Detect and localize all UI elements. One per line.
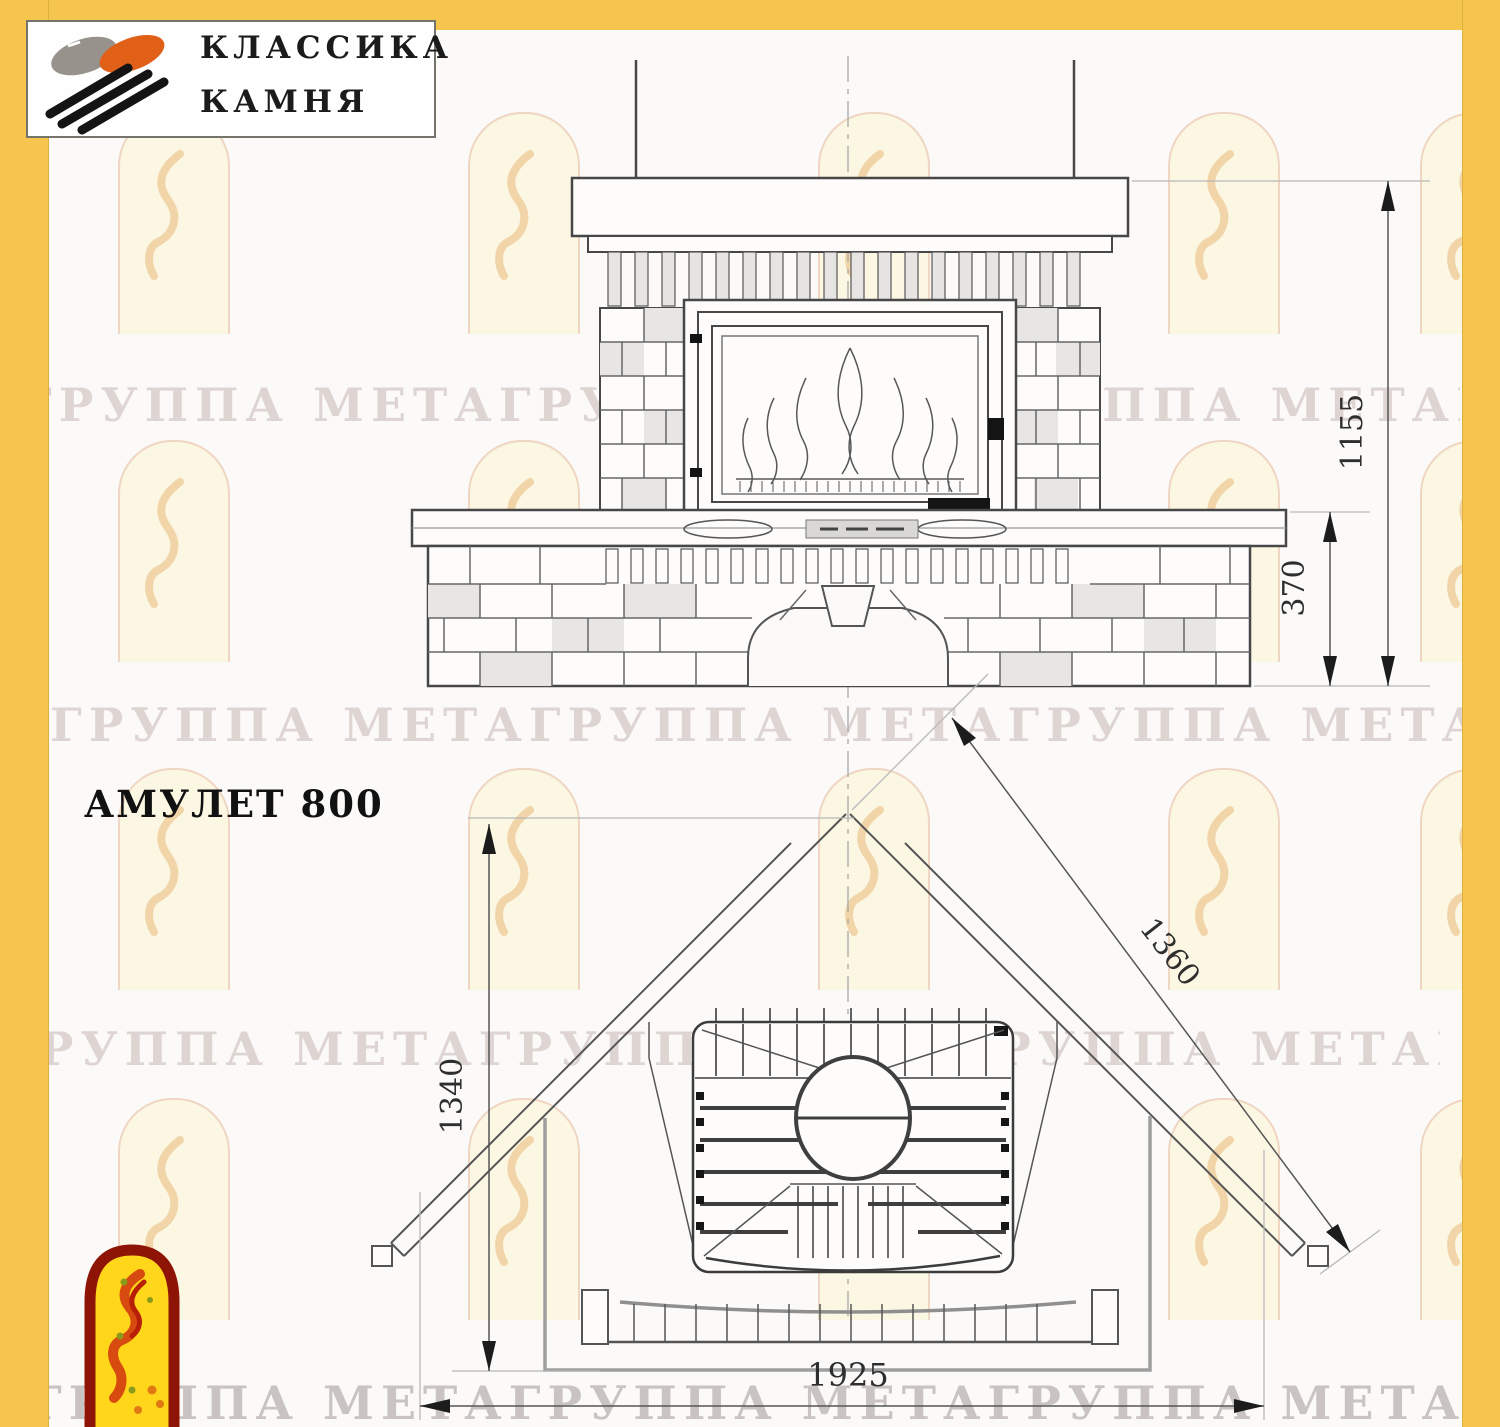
dim-front-plinth-height: 370 [1277,543,1311,633]
hinge-bottom [690,468,702,477]
plan-front-brick-row [582,1290,1118,1344]
firebox-insert [684,300,1016,526]
dim-front-total-height: 1155 [1335,372,1369,492]
page-title: АМУЛЕТ 800 [84,782,384,826]
bench-slab [412,510,1286,546]
hinge-top [690,334,702,343]
stone-plinth [428,546,1250,686]
brand-name-line1: КЛАССИКА [200,30,453,66]
mantel-lip [588,236,1112,252]
company-emblem [80,1240,184,1427]
catalog-sheet: ГРУППА МЕТАГРУППА МЕТАГРУППА МЕТАГРУППАГ… [0,0,1500,1427]
insert-plan [649,1008,1057,1272]
brand-name-line2: КАМНЯ [200,84,369,120]
brick-column-left [600,308,686,515]
ashpan-handle [928,498,990,510]
brick-column-right [1014,308,1100,515]
door-handle [988,418,1004,440]
plan-view [372,674,1380,1420]
log-grate [740,481,960,492]
brand-logo: КЛАССИКА КАМНЯ [26,20,436,138]
keystone [822,586,874,626]
brand-stones-icon [36,26,196,136]
dim-plan-depth: 1340 [435,1036,469,1156]
dentil-row [608,252,1080,306]
dim-plan-overall-width: 1925 [778,1356,918,1392]
fireplace-technical-drawing [0,0,1500,1427]
emblem-arch-icon [80,1240,184,1427]
mantel-shelf [572,178,1128,236]
